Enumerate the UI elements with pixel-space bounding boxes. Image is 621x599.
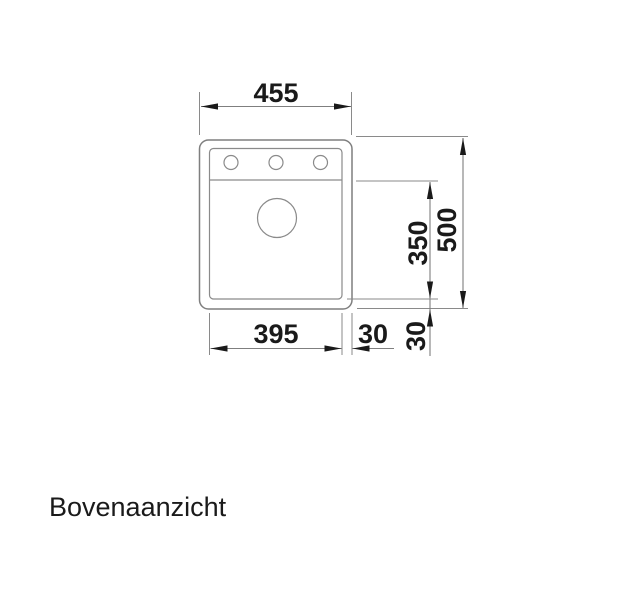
dimension-bowl-width: 395: [210, 313, 343, 355]
faucet-hole-right: [314, 156, 328, 170]
arrow-down-icon: [460, 291, 466, 308]
sink-inner-outline: [210, 149, 343, 300]
sink-outer-outline: [200, 140, 353, 309]
arrow-down-icon: [427, 282, 433, 299]
faucet-hole-left: [224, 156, 238, 170]
dimension-rim-right: 30: [352, 313, 394, 355]
sink-outline-group: [200, 140, 353, 309]
faucet-hole-center: [269, 156, 283, 170]
arrow-right-icon: [325, 345, 342, 351]
view-title: Bovenaanzicht: [49, 492, 226, 523]
arrow-left-icon: [211, 345, 228, 351]
dimension-bowl-depth: 350: [347, 181, 438, 299]
drain-hole: [258, 199, 297, 238]
dimension-value: 350: [403, 220, 433, 265]
arrow-left-icon: [201, 103, 218, 109]
arrow-up-icon: [427, 182, 433, 199]
dimension-value: 395: [253, 319, 298, 349]
dimension-overall-width: 455: [200, 78, 352, 135]
dimension-value: 455: [253, 78, 298, 108]
dimension-rim-bottom: 30: [401, 299, 433, 356]
dimension-value: 30: [358, 319, 388, 349]
technical-drawing-page: 455 500 350 395: [0, 0, 621, 599]
dimension-value: 30: [401, 321, 431, 351]
dimension-value: 500: [432, 207, 462, 252]
arrow-up-icon: [460, 138, 466, 155]
arrow-right-icon: [334, 103, 351, 109]
